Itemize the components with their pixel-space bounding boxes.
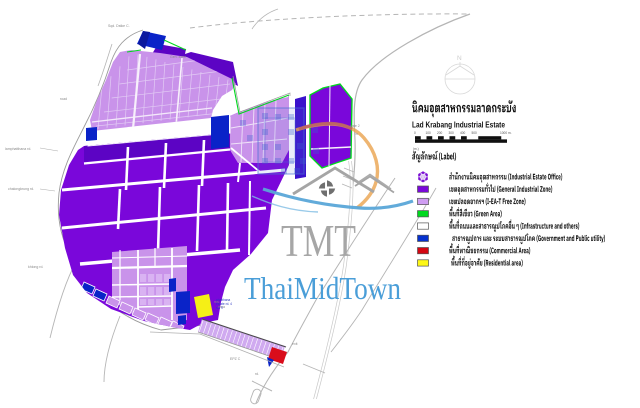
svg-text:0: 0 [414,131,416,135]
svg-text:100: 100 [426,131,432,135]
svg-text:TMT: TMT [281,215,356,266]
svg-text:Sqd. Dstke C.: Sqd. Dstke C. [108,24,130,28]
svg-text:chalongkrung rd.: chalongkrung rd. [8,187,34,191]
svg-text:khlong rd.: khlong rd. [28,265,43,269]
svg-text:(m.): (m.) [413,147,419,151]
svg-text:road: road [60,97,67,101]
svg-text:Gen. zone: Gen. zone [170,55,186,59]
svg-text:EPZ C: EPZ C [230,357,241,361]
svg-text:Lad Krabang Industrial Estate: Lad Krabang Industrial Estate [412,120,505,130]
svg-text:ThaiMidTown: ThaiMidTown [244,270,401,306]
svg-text:N: N [457,55,462,62]
svg-text:1000 m.: 1000 m. [500,131,512,135]
svg-text:soi 9: soi 9 [216,306,223,310]
svg-text:400: 400 [460,131,466,135]
svg-text:in: in [355,132,358,136]
svg-text:300: 300 [449,131,455,135]
svg-text:500: 500 [472,131,478,135]
svg-text:lamphatthana rd.: lamphatthana rd. [5,147,31,151]
svg-text:200: 200 [437,131,443,135]
svg-text:gate 2: gate 2 [350,124,360,128]
svg-text:exit: exit [292,342,297,346]
svg-text:rd.: rd. [255,372,259,376]
